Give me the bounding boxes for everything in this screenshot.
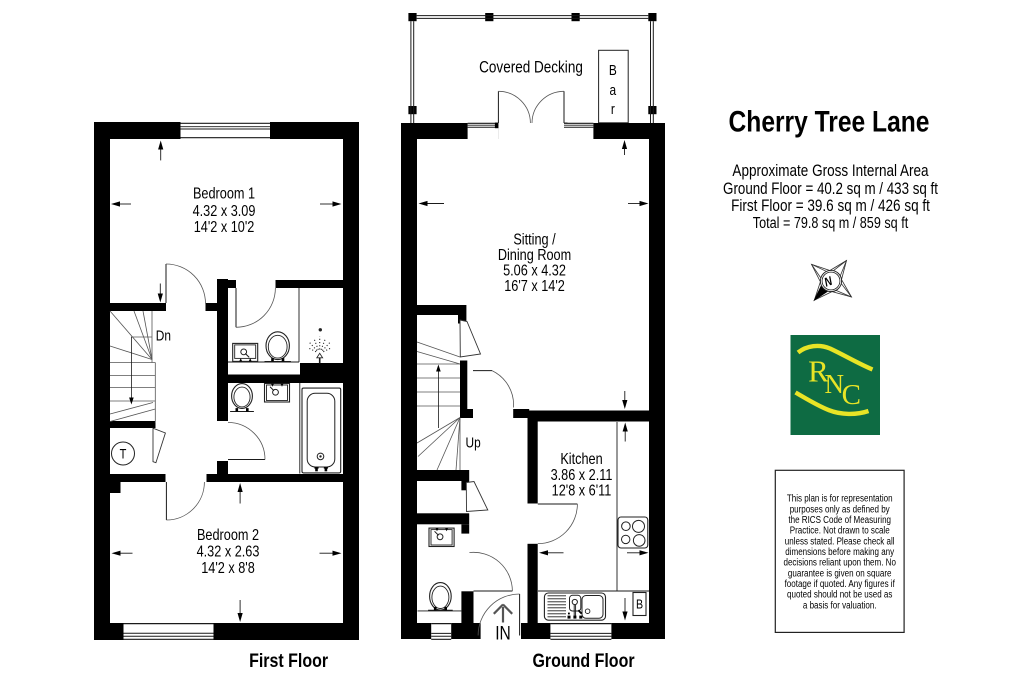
svg-text:Total = 79.8 sq m / 859 sq ft: Total = 79.8 sq m / 859 sq ft [753,214,909,231]
svg-text:IN: IN [495,622,511,644]
svg-text:quoted should not be used as: quoted should not be used as [787,589,893,600]
svg-text:Approximate Gross Internal Are: Approximate Gross Internal Area [732,162,929,181]
svg-text:4.32 x 3.09: 4.32 x 3.09 [193,203,256,220]
svg-text:Ground Floor = 40.2 sq m / 433: Ground Floor = 40.2 sq m / 433 sq ft [723,181,939,198]
svg-text:decisions reliant upon them. N: decisions reliant upon them. No [783,557,895,568]
svg-text:This plan is for representatio: This plan is for representation [787,493,893,504]
svg-text:First Floor: First Floor [249,650,328,672]
svg-text:B: B [609,62,617,78]
svg-text:Covered Decking: Covered Decking [479,58,583,77]
svg-text:Practice. Not drawn to scale: Practice. Not drawn to scale [790,525,890,536]
svg-text:14'2 x 10'2: 14'2 x 10'2 [194,219,255,236]
svg-text:4.32 x 2.63: 4.32 x 2.63 [197,543,260,560]
svg-text:C: C [842,379,861,411]
svg-text:Cherry Tree Lane: Cherry Tree Lane [729,104,930,138]
svg-text:Bedroom 1: Bedroom 1 [193,185,255,202]
svg-text:Bedroom 2: Bedroom 2 [197,527,259,544]
svg-text:Up: Up [466,434,481,450]
svg-text:Kitchen: Kitchen [560,451,602,468]
svg-text:16'7 x 14'2: 16'7 x 14'2 [504,278,565,295]
svg-text:purposes only as defined by: purposes only as defined by [790,504,890,515]
svg-text:Dn: Dn [156,327,171,343]
svg-text:r: r [611,101,615,117]
svg-text:unless stated. Please check al: unless stated. Please check all [785,536,895,547]
svg-text:T: T [120,446,127,461]
svg-text:14'2 x 8'8: 14'2 x 8'8 [201,560,255,577]
svg-text:Ground Floor: Ground Floor [532,650,634,672]
svg-text:a: a [609,82,616,98]
svg-text:First Floor = 39.6 sq m / 426: First Floor = 39.6 sq m / 426 sq ft [731,197,930,216]
svg-text:12'8 x 6'11: 12'8 x 6'11 [552,482,612,499]
svg-text:a basis for valuation.: a basis for valuation. [803,600,877,611]
svg-text:dimensions before making any: dimensions before making any [785,546,894,557]
svg-text:footage if quoted. Any figures: footage if quoted. Any figures if [785,578,896,589]
svg-text:B: B [636,597,643,612]
svg-text:the RICS Code of Measuring: the RICS Code of Measuring [788,514,891,525]
svg-text:guarantee is given on square: guarantee is given on square [788,568,892,579]
